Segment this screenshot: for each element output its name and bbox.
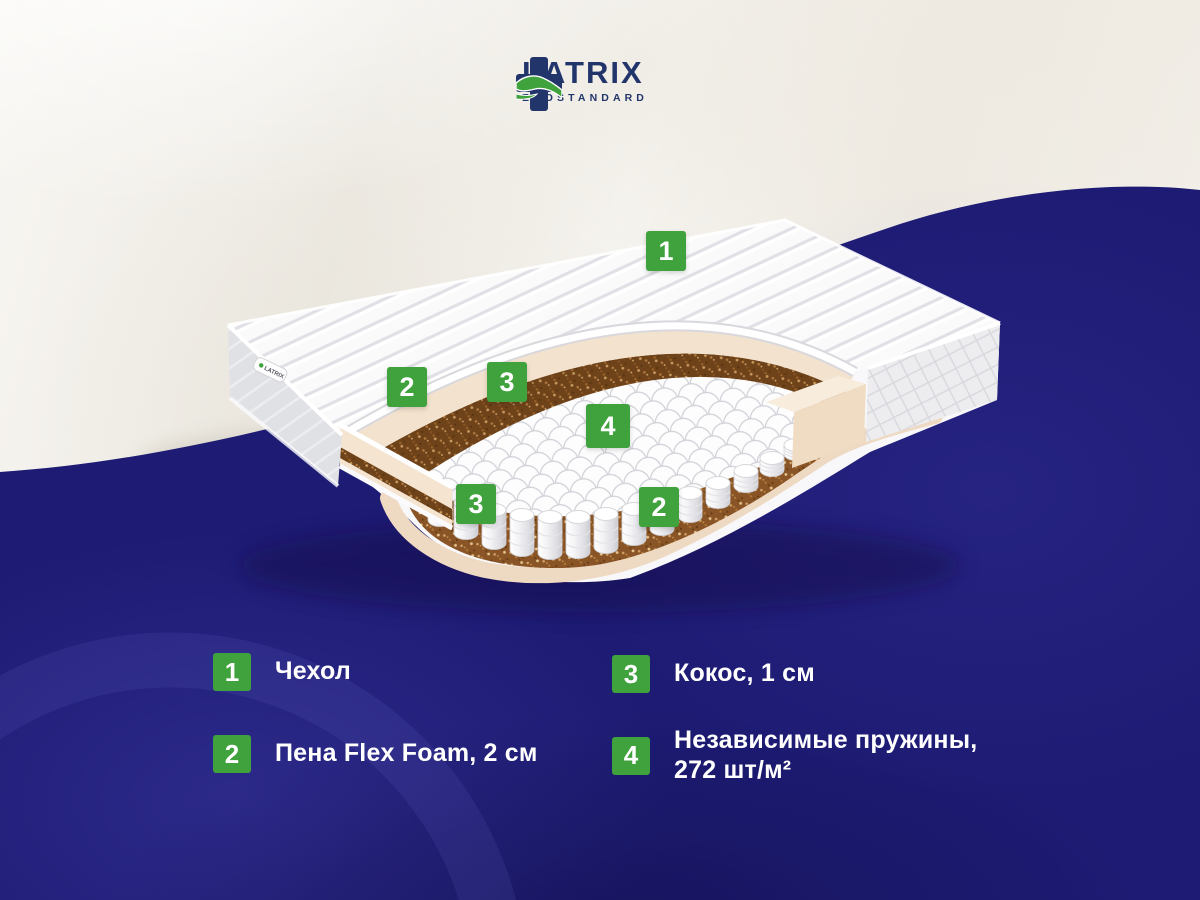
legend-label-foam: Пена Flex Foam, 2 см bbox=[275, 739, 538, 769]
legend-label-line: Чехол bbox=[275, 657, 351, 687]
legend-badge-3: 3 bbox=[612, 655, 650, 693]
callout-badge-4: 4 bbox=[586, 404, 630, 448]
legend-label-springs: Независимые пружины, 272 шт/м² bbox=[674, 726, 977, 785]
legend-item-cover: 1 Чехол bbox=[213, 653, 351, 691]
callout-badge-3-lower: 3 bbox=[456, 484, 496, 524]
legend-badge-2: 2 bbox=[213, 735, 251, 773]
legend-item-coconut: 3 Кокос, 1 см bbox=[612, 655, 815, 693]
callout-badge-2-lower: 2 bbox=[639, 487, 679, 527]
legend-label-line: Кокос, 1 см bbox=[674, 659, 815, 689]
legend-item-springs: 4 Независимые пружины, 272 шт/м² bbox=[612, 726, 977, 785]
legend-label-coconut: Кокос, 1 см bbox=[674, 659, 815, 689]
callout-badge-3-upper: 3 bbox=[487, 362, 527, 402]
logo-cross-icon bbox=[516, 57, 562, 111]
legend-label-line2: 272 шт/м² bbox=[674, 756, 977, 786]
callout-badge-1: 1 bbox=[646, 231, 686, 271]
legend-item-foam: 2 Пена Flex Foam, 2 см bbox=[213, 735, 538, 773]
legend-label-line: Независимые пружины, bbox=[674, 726, 977, 756]
legend-badge-1: 1 bbox=[213, 653, 251, 691]
infographic-canvas: LATRIX LATRIX ECOSTANDARD 1 2 3 4 3 2 1 … bbox=[0, 0, 1200, 900]
legend-badge-4: 4 bbox=[612, 737, 650, 775]
legend-label-line: Пена Flex Foam, 2 см bbox=[275, 739, 538, 769]
callout-badge-2-upper: 2 bbox=[387, 367, 427, 407]
mattress-illustration: LATRIX bbox=[0, 0, 1200, 900]
legend-label-cover: Чехол bbox=[275, 657, 351, 687]
brand-logo: LATRIX ECOSTANDARD bbox=[516, 57, 648, 104]
